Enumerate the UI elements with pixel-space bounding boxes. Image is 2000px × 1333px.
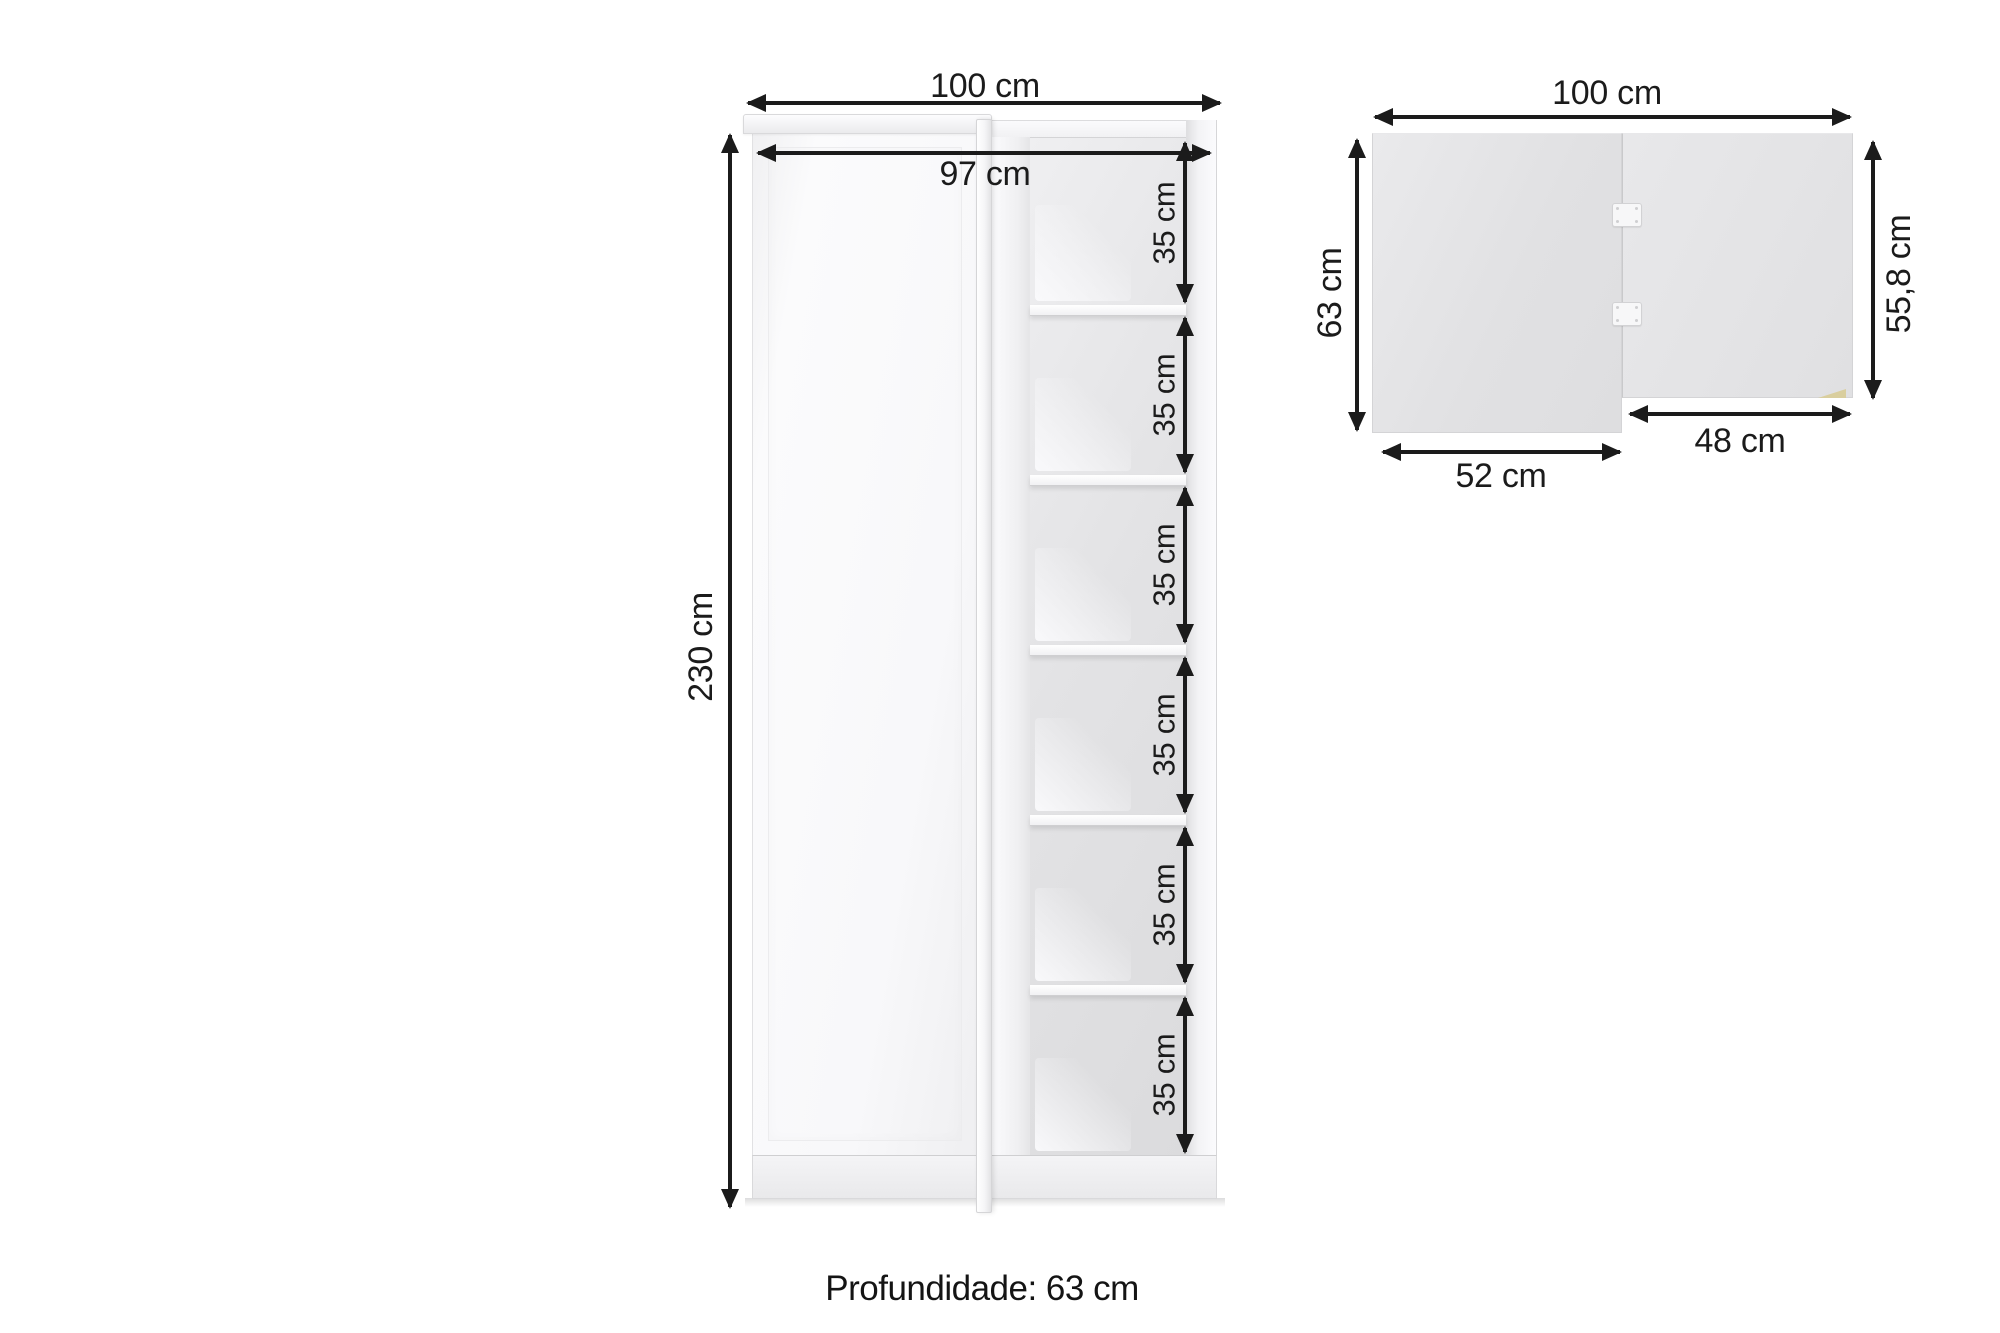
compartment-highlight [1035, 378, 1131, 471]
compartment-depth-arrow [1183, 318, 1187, 472]
compartment-6: 35 cm [1030, 995, 1217, 1155]
top-width-arrow [1375, 115, 1850, 119]
top-view-right-section [1622, 133, 1853, 398]
top-left-width-arrow [1383, 450, 1620, 454]
compartment-3: 35 cm [1030, 485, 1217, 645]
sliding-door-trim-strip [976, 119, 992, 1213]
compartment-highlight [1035, 205, 1131, 301]
compartment-highlight [1035, 888, 1131, 981]
compartment-4: 35 cm [1030, 655, 1217, 815]
cabinet-top-cap [743, 114, 992, 134]
compartment-depth-arrow [1183, 998, 1187, 1152]
top-right-width-arrow [1630, 412, 1850, 416]
compartment-depth-arrow [1183, 488, 1187, 642]
compartment-5: 35 cm [1030, 825, 1217, 985]
top-left-width-label: 52 cm [1455, 459, 1546, 493]
top-width-label: 100 cm [1552, 76, 1662, 110]
top-view-left-section [1372, 133, 1622, 433]
top-right-width-label: 48 cm [1694, 424, 1785, 458]
front-inner-width-label: 97 cm [939, 157, 1030, 191]
diagram-canvas: 35 cm 35 cm 35 cm 35 cm 35 cm 35 cm [0, 0, 2000, 1333]
compartment-1: 35 cm [1030, 140, 1217, 305]
depth-note: Profundidade: 63 cm [825, 1269, 1138, 1309]
top-left-depth-label: 63 cm [1313, 247, 1347, 338]
hinge-plate-1 [1612, 203, 1642, 227]
top-right-depth-arrow [1871, 142, 1875, 398]
top-left-depth-arrow [1355, 140, 1359, 430]
compartment-depth-arrow [1183, 658, 1187, 812]
compartment-2: 35 cm [1030, 315, 1217, 475]
cabinet-door-panel [768, 147, 962, 1141]
front-width-label: 100 cm [930, 69, 1040, 103]
top-right-depth-label: 55,8 cm [1882, 215, 1916, 334]
shelf-module-left-wall [991, 137, 1030, 1155]
cabinet-door [752, 131, 978, 1157]
hinge-plate-2 [1612, 302, 1642, 326]
compartment-depth-label: 35 cm [1149, 181, 1180, 264]
compartment-depth-label: 35 cm [1149, 1034, 1180, 1117]
compartment-depth-label: 35 cm [1149, 864, 1180, 947]
compartment-depth-arrow [1183, 143, 1187, 302]
compartment-depth-arrow [1183, 828, 1187, 982]
compartment-highlight [1035, 548, 1131, 641]
compartment-depth-label: 35 cm [1149, 524, 1180, 607]
compartment-depth-label: 35 cm [1149, 694, 1180, 777]
compartment-depth-label: 35 cm [1149, 354, 1180, 437]
compartment-highlight [1035, 1058, 1131, 1151]
compartment-highlight [1035, 718, 1131, 811]
front-height-label: 230 cm [684, 592, 718, 702]
front-height-arrow [728, 135, 732, 1207]
